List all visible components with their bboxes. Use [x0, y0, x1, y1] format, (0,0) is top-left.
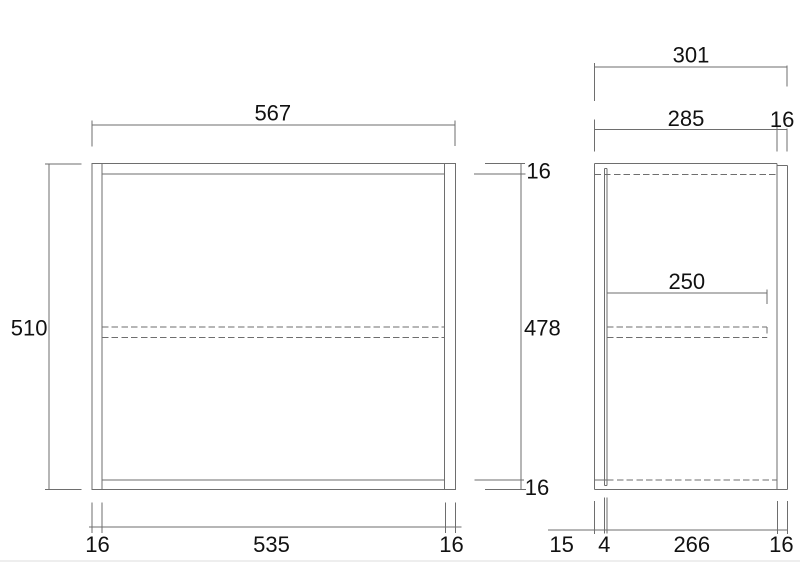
svg-text:16: 16	[769, 532, 793, 557]
svg-text:16: 16	[85, 532, 109, 557]
svg-text:285: 285	[668, 106, 705, 131]
svg-text:535: 535	[253, 532, 290, 557]
svg-text:510: 510	[11, 316, 48, 341]
svg-text:16: 16	[439, 532, 463, 557]
svg-text:250: 250	[668, 269, 705, 294]
svg-text:16: 16	[525, 475, 549, 500]
svg-text:266: 266	[673, 532, 710, 557]
svg-text:15: 15	[549, 532, 573, 557]
svg-text:301: 301	[673, 43, 710, 68]
svg-text:16: 16	[770, 107, 794, 132]
svg-text:478: 478	[524, 316, 561, 341]
svg-text:567: 567	[254, 100, 291, 125]
svg-text:4: 4	[598, 532, 610, 557]
svg-text:16: 16	[526, 158, 550, 183]
